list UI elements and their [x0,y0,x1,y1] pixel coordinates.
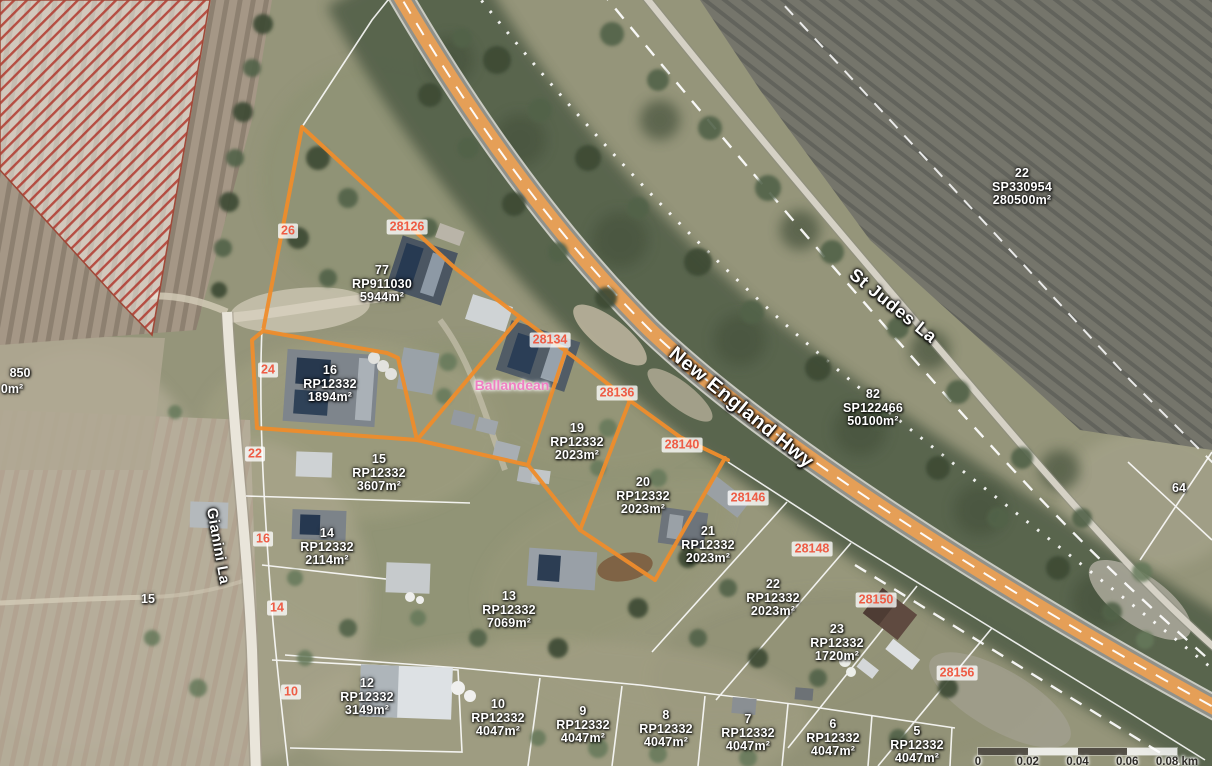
scale-bar-segments [978,748,1177,755]
scale-segment [1028,748,1078,755]
scale-tick-label: 0.04 [1066,756,1088,766]
scale-segment [1078,748,1128,755]
map-scale-bar: 00.020.040.060.08 km [978,748,1177,766]
scale-segment [978,748,1028,755]
scale-tick-label: 0 [975,756,981,766]
scale-segment [1127,748,1177,755]
scale-tick-label: 0.08 km [1156,756,1198,766]
scale-tick-label: 0.06 [1116,756,1138,766]
aerial-imagery [0,0,1212,766]
scale-bar-ticks: 00.020.040.060.08 km [978,755,1177,766]
scale-tick-label: 0.02 [1017,756,1039,766]
map-canvas[interactable]: 22SP330954280500m²82SP12246650100m²77RP9… [0,0,1212,766]
